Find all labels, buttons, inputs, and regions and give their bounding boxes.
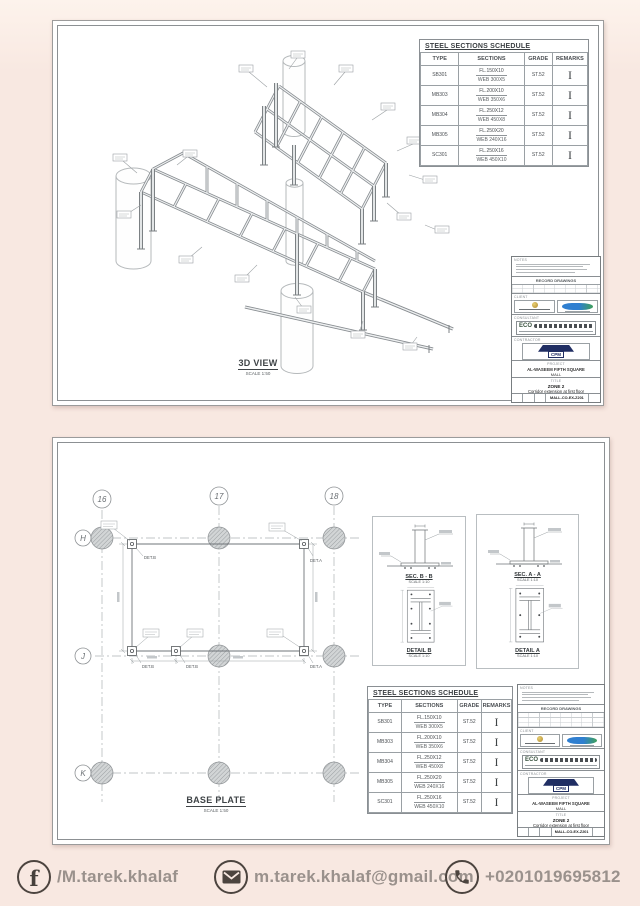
- grid-bubble-18: 18: [330, 492, 339, 501]
- grade-cell: ST.52: [524, 106, 552, 126]
- section-b-sketch: [377, 522, 461, 574]
- col-type: TYPE: [421, 53, 459, 66]
- type-cell: MB303: [369, 733, 402, 753]
- sheet-3d-view: 3D VIEW SCALE 1:50 STEEL SECTIONS SCHEDU…: [52, 20, 604, 406]
- remarks-cell: I: [481, 713, 511, 733]
- det-b-label-1: DET.B: [144, 555, 156, 560]
- ibeam-section-icon: I: [568, 68, 572, 82]
- type-cell: SC301: [369, 793, 402, 813]
- grade-cell: ST.52: [457, 713, 481, 733]
- gold-emblem-icon: [537, 736, 543, 742]
- contractor-label: CONTRACTOR: [514, 338, 598, 342]
- concrete-columns: [116, 56, 313, 374]
- notes-section: NOTES: [512, 257, 600, 277]
- eco-logo: ECO: [516, 321, 596, 335]
- type-cell: MB305: [369, 773, 402, 793]
- ibeam-section-icon: I: [568, 108, 572, 122]
- det-b-label-2: DET.B: [142, 664, 154, 669]
- project-name-2: MALL: [514, 372, 598, 377]
- arabic-calligraphy-icon: [534, 324, 593, 328]
- title-block-2: NOTES RECORD DRAWINGS CLIENT CONSULTANT …: [517, 684, 605, 837]
- type-cell: SB301: [421, 66, 459, 86]
- schedule-row: MB304 FL.250X12WEB 450X8 ST.52 I: [369, 753, 512, 773]
- sheet-base-plate: 16 17 18 H J K: [52, 437, 610, 845]
- client-section: CLIENT: [518, 728, 604, 749]
- schedule-row: MB305 FL.250X20WEB 240X16 ST.52 I: [421, 126, 588, 146]
- det-b-label-3: DET.B: [186, 664, 198, 669]
- consultant-label: CONSULTANT: [514, 316, 598, 320]
- remarks-cell: I: [481, 733, 511, 753]
- col-grade: GRADE: [524, 53, 552, 66]
- remarks-cell: I: [552, 146, 587, 166]
- phone-contact[interactable]: +0201019695812: [445, 860, 621, 894]
- grade-cell: ST.52: [524, 126, 552, 146]
- consultant-section: CONSULTANT ECO: [518, 749, 604, 771]
- ibeam-section-icon: I: [568, 148, 572, 162]
- schedule-header-row: TYPE SECTIONS GRADE REMARKS: [369, 700, 512, 713]
- drawing-number-row: MALL-CO-EX-Z201: [518, 828, 604, 836]
- col-type: TYPE: [369, 700, 402, 713]
- remarks-cell: I: [481, 753, 511, 773]
- remarks-cell: I: [552, 86, 587, 106]
- facebook-icon: f: [17, 860, 51, 894]
- grade-cell: ST.52: [457, 793, 481, 813]
- record-drawings-grid: [518, 713, 604, 727]
- gold-emblem-icon: [532, 302, 538, 308]
- drawing-number-row: MALL-CO-EX-Z201: [512, 394, 600, 402]
- sections-cell: FL.250X12WEB 450X8: [401, 753, 457, 773]
- detail-b-scale: SCALE 1:10: [409, 654, 430, 658]
- contractor-section: CONTRACTOR CPM: [512, 337, 600, 361]
- schedule-row: SC301 FL.250X16WEB 450X10 ST.52 I: [421, 146, 588, 166]
- eco-logo: ECO: [522, 755, 600, 769]
- sections-cell: FL.250X16WEB 450X10: [459, 146, 524, 166]
- type-cell: SB301: [369, 713, 402, 733]
- sections-cell: FL.150X10WEB 300X5: [459, 66, 524, 86]
- title-label: TITLE: [520, 813, 602, 817]
- view-caption-base-plate: BASE PLATE SCALE 1:50: [171, 790, 261, 813]
- consultant-label: CONSULTANT: [520, 750, 602, 754]
- record-drawings-label: RECORD DRAWINGS: [518, 705, 604, 713]
- page-background: 3D VIEW SCALE 1:50 STEEL SECTIONS SCHEDU…: [0, 0, 640, 906]
- view-title: 3D VIEW: [238, 358, 277, 370]
- schedule-row: MB304 FL.250X12WEB 450X8 ST.52 I: [421, 106, 588, 126]
- drawing-number: MALL-CO-EX-Z201: [546, 394, 588, 402]
- sections-cell: FL.250X20WEB 240X16: [459, 126, 524, 146]
- view-caption-3d: 3D VIEW SCALE 1:50: [213, 353, 303, 376]
- sections-cell: FL.150X10WEB 300X5: [401, 713, 457, 733]
- blue-logo-icon: [562, 303, 593, 310]
- ibeam-section-icon: I: [494, 795, 498, 809]
- client-label: CLIENT: [514, 295, 598, 299]
- grid-bubble-h: H: [80, 534, 86, 543]
- steel-sections-schedule: STEEL SECTIONS SCHEDULE TYPE SECTIONS GR…: [419, 39, 589, 167]
- schedule-row: MB303 FL.200X10WEB 350X6 ST.52 I: [421, 86, 588, 106]
- cpm-roof-icon: [538, 345, 574, 352]
- project-section: PROJECT AL-WASEEM FIFTH SQUARE MALL: [512, 361, 600, 378]
- client-logo-2: [557, 300, 598, 313]
- cpm-logo: CPM: [528, 777, 594, 794]
- grid-bubbles: [75, 487, 343, 781]
- remarks-cell: I: [481, 793, 511, 813]
- schedule-row: MB305 FL.250X20WEB 240X16 ST.52 I: [369, 773, 512, 793]
- consultant-section: CONSULTANT ECO: [512, 315, 600, 337]
- sections-cell: FL.250X20WEB 240X16: [401, 773, 457, 793]
- grade-cell: ST.52: [524, 146, 552, 166]
- remarks-cell: I: [552, 66, 587, 86]
- title-label: TITLE: [514, 379, 598, 383]
- email-icon: [214, 860, 248, 894]
- ibeam-section-icon: I: [494, 735, 498, 749]
- detail-box-a: SEC. A - A SCALE 1:10 DETAIL A SCALE 1:: [476, 514, 579, 669]
- det-a-label-2: DET.A: [310, 664, 322, 669]
- contractor-label: CONTRACTOR: [520, 772, 602, 776]
- remarks-cell: I: [481, 773, 511, 793]
- record-drawings-section: RECORD DRAWINGS: [512, 277, 600, 294]
- sections-cell: FL.250X12WEB 450X8: [459, 106, 524, 126]
- sec-b-scale: SCALE 1:10: [409, 580, 430, 584]
- sec-a-scale: SCALE 1:10: [517, 578, 538, 582]
- remarks-cell: I: [552, 106, 587, 126]
- notes-label: NOTES: [514, 258, 598, 262]
- det-a-label-1: DET.A: [310, 558, 322, 563]
- drawing-title-section: TITLE ZONE 2 Corridor extension at first…: [518, 812, 604, 828]
- cpm-logo-text: CPM: [548, 351, 564, 358]
- grid-bubble-k: K: [80, 769, 86, 778]
- phone-number: +0201019695812: [485, 867, 621, 887]
- sections-cell: FL.250X16WEB 450X10: [401, 793, 457, 813]
- client-label: CLIENT: [520, 729, 602, 733]
- detail-b-sketch: [377, 586, 461, 648]
- col-sections: SECTIONS: [401, 700, 457, 713]
- email-contact[interactable]: m.tarek.khalaf@gmail.com: [214, 860, 474, 894]
- facebook-contact[interactable]: f /M.tarek.khalaf: [17, 860, 178, 894]
- email-address: m.tarek.khalaf@gmail.com: [254, 867, 474, 887]
- grade-cell: ST.52: [457, 753, 481, 773]
- ibeam-section-icon: I: [568, 128, 572, 142]
- type-cell: MB304: [369, 753, 402, 773]
- schedule-row: MB303 FL.200X10WEB 350X6 ST.52 I: [369, 733, 512, 753]
- title-block: NOTES RECORD DRAWINGS CLIENT CONSULTANT …: [511, 256, 601, 403]
- grade-cell: ST.52: [457, 733, 481, 753]
- col-grade: GRADE: [457, 700, 481, 713]
- col-remarks: REMARKS: [552, 53, 587, 66]
- project-label: PROJECT: [514, 362, 598, 366]
- project-name-2: MALL: [520, 806, 602, 811]
- type-cell: MB305: [421, 126, 459, 146]
- client-logo-1: [514, 300, 555, 313]
- col-remarks: REMARKS: [481, 700, 511, 713]
- client-section: CLIENT: [512, 294, 600, 315]
- plan-title: BASE PLATE: [186, 795, 245, 807]
- col-sections: SECTIONS: [459, 53, 524, 66]
- grade-cell: ST.52: [524, 86, 552, 106]
- detail-a-sketch: [486, 584, 570, 648]
- type-cell: SC301: [421, 146, 459, 166]
- drawing-title-section: TITLE ZONE 2 Corridor extension at first…: [512, 378, 600, 394]
- ibeam-section-icon: I: [494, 775, 498, 789]
- type-cell: MB304: [421, 106, 459, 126]
- schedule-row: SB301 FL.150X10WEB 300X5 ST.52 I: [421, 66, 588, 86]
- ibeam-section-icon: I: [494, 715, 498, 729]
- record-drawings-section: RECORD DRAWINGS: [518, 705, 604, 728]
- sections-cell: FL.200X10WEB 350X6: [401, 733, 457, 753]
- grade-cell: ST.52: [457, 773, 481, 793]
- cpm-logo-text: CPM: [553, 785, 569, 792]
- arabic-calligraphy-icon: [540, 758, 597, 762]
- schedule-row: SC301 FL.250X16WEB 450X10 ST.52 I: [369, 793, 512, 813]
- phone-icon: [445, 860, 479, 894]
- blue-logo-icon: [567, 737, 597, 744]
- record-drawings-grid: [512, 285, 600, 293]
- type-cell: MB303: [421, 86, 459, 106]
- notes-section: NOTES: [518, 685, 604, 705]
- ibeam-section-icon: I: [568, 88, 572, 102]
- view-scale: SCALE 1:50: [213, 371, 303, 376]
- contact-footer: f /M.tarek.khalaf m.tarek.khalaf@gmail.c…: [0, 856, 640, 906]
- facebook-handle: /M.tarek.khalaf: [57, 867, 178, 887]
- cpm-roof-icon: [543, 779, 579, 786]
- eco-logo-text: ECO: [525, 757, 538, 763]
- ibeam-section-icon: I: [494, 755, 498, 769]
- schedule-title: STEEL SECTIONS SCHEDULE: [420, 40, 588, 52]
- grid-bubble-17: 17: [215, 492, 224, 501]
- schedule-header-row: TYPE SECTIONS GRADE REMARKS: [421, 53, 588, 66]
- steel-sections-schedule-2: STEEL SECTIONS SCHEDULE TYPE SECTIONS GR…: [367, 686, 513, 814]
- schedule-title: STEEL SECTIONS SCHEDULE: [368, 687, 512, 699]
- contractor-section: CONTRACTOR CPM: [518, 771, 604, 795]
- sections-cell: FL.200X10WEB 350X6: [459, 86, 524, 106]
- grade-cell: ST.52: [524, 66, 552, 86]
- plan-scale: SCALE 1:50: [171, 808, 261, 813]
- project-section: PROJECT AL-WASEEM FIFTH SQUARE MALL: [518, 795, 604, 812]
- grid-bubble-16: 16: [98, 495, 107, 504]
- record-drawings-label: RECORD DRAWINGS: [512, 277, 600, 285]
- client-logo-1: [520, 734, 560, 747]
- client-logo-2: [562, 734, 602, 747]
- notes-label: NOTES: [520, 686, 602, 690]
- cpm-logo: CPM: [522, 343, 590, 360]
- eco-logo-text: ECO: [519, 323, 532, 329]
- drawing-number: MALL-CO-EX-Z201: [552, 828, 593, 836]
- detail-a-scale: SCALE 1:10: [517, 654, 538, 658]
- project-label: PROJECT: [520, 796, 602, 800]
- schedule-row: SB301 FL.150X10WEB 300X5 ST.52 I: [369, 713, 512, 733]
- remarks-cell: I: [552, 126, 587, 146]
- section-a-sketch: [486, 520, 570, 572]
- detail-box-b: SEC. B - B SCALE 1:10 DETAIL B: [372, 516, 466, 666]
